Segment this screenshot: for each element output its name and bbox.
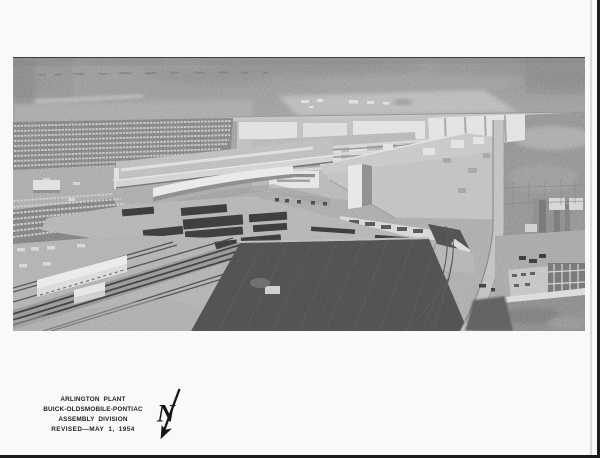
svg-text:N: N [156, 401, 176, 428]
